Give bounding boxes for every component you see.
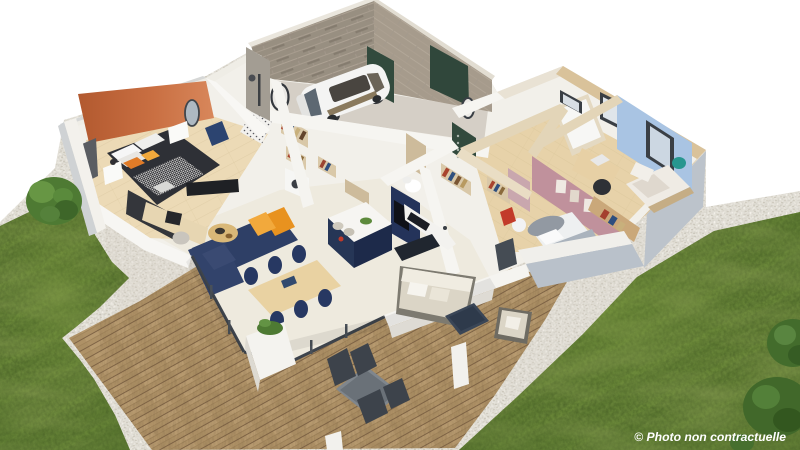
svg-text:© Photo non contractuelle: © Photo non contractuelle bbox=[634, 430, 786, 444]
